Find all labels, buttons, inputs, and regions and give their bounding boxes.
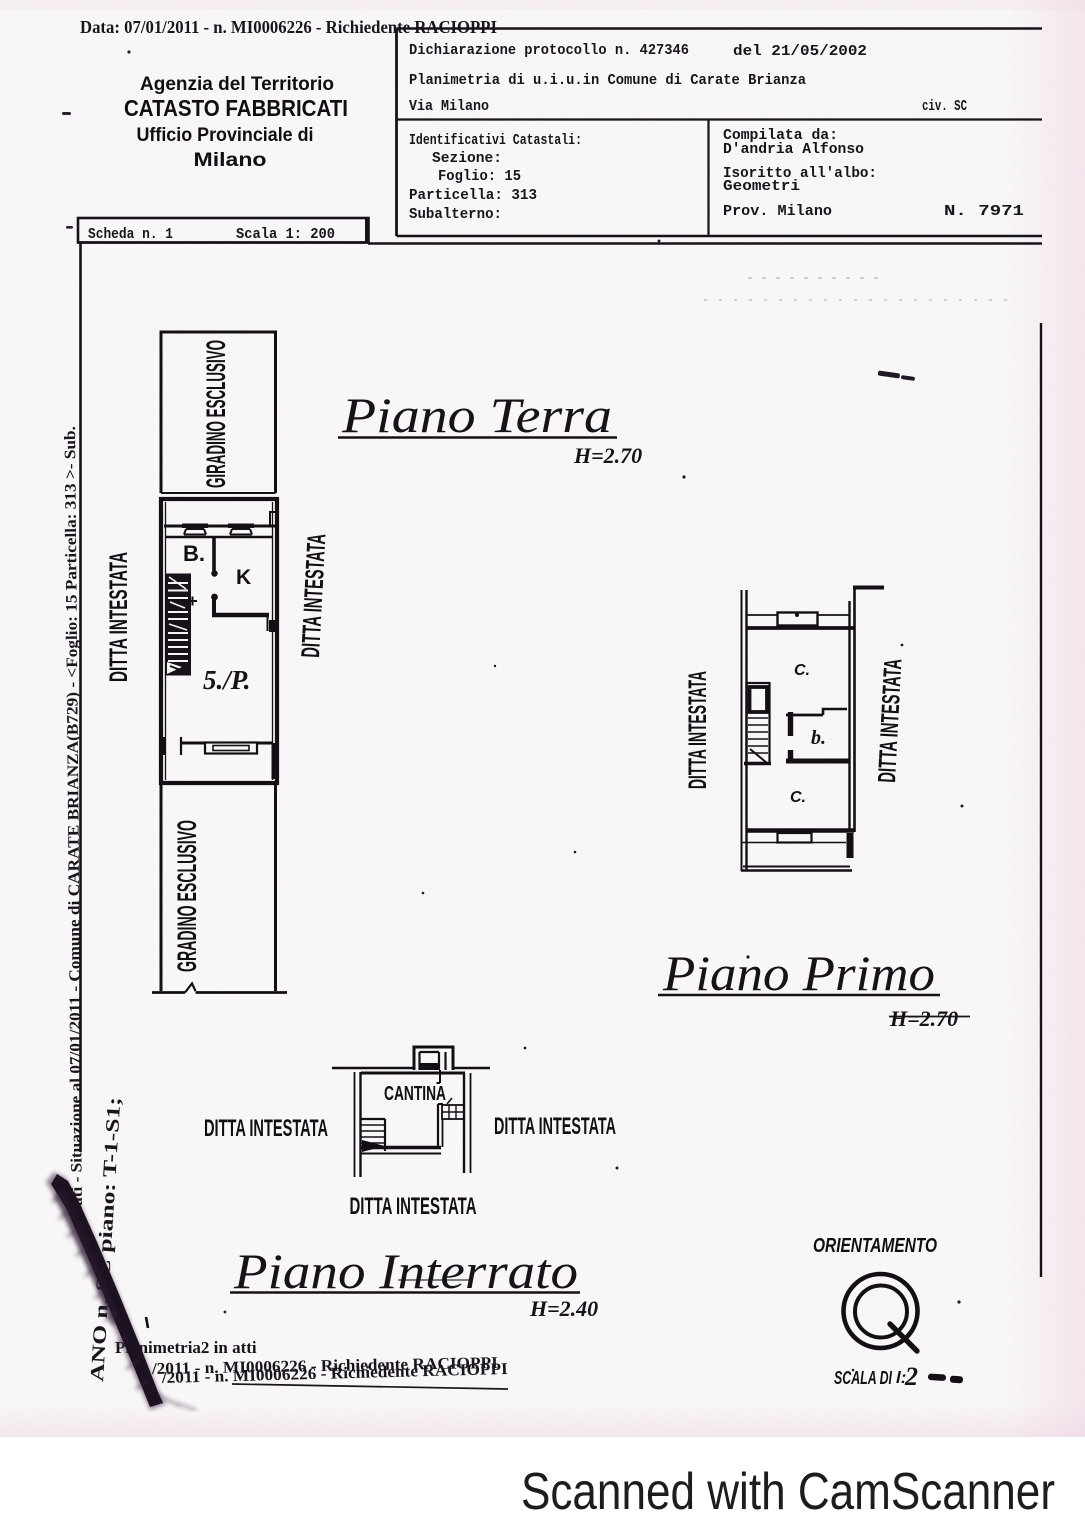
- svg-text:DITTA INTESTATA: DITTA INTESTATA: [684, 671, 712, 789]
- svg-text:civ. SC: civ. SC: [922, 99, 967, 115]
- svg-text:DITTA INTESTATA: DITTA INTESTATA: [494, 1113, 616, 1140]
- svg-text:Data: 07/01/2011 - n. MI000622: Data: 07/01/2011 - n. MI0006226 - Richie…: [80, 17, 497, 37]
- svg-text:Geometri: Geometri: [723, 179, 800, 195]
- svg-text:B.: B.: [183, 541, 205, 566]
- svg-text:Planimetria di u.i.u.in Comune: Planimetria di u.i.u.in Comune di Carate…: [409, 73, 806, 89]
- svg-text:Scheda n. 1: Scheda n. 1: [88, 227, 173, 243]
- svg-text:ORIENTAMENTO: ORIENTAMENTO: [813, 1235, 937, 1257]
- svg-text:H=2.70: H=2.70: [573, 443, 642, 468]
- svg-text:GRADINO ESCLUSIVO: GRADINO ESCLUSIVO: [172, 820, 202, 972]
- svg-text:Agenzia del Territorio: Agenzia del Territorio: [140, 74, 334, 95]
- svg-text:CATASTO FABBRICATI: CATASTO FABBRICATI: [124, 95, 348, 121]
- svg-text:2: 2: [904, 1362, 918, 1391]
- svg-text:Prov. Milano: Prov. Milano: [723, 204, 832, 220]
- svg-text:SCALA DI: SCALA DI: [834, 1368, 893, 1388]
- svg-text:DITTA INTESTATA: DITTA INTESTATA: [105, 552, 133, 682]
- svg-text:H=2.40: H=2.40: [529, 1296, 598, 1321]
- svg-text:Particella: 313: Particella: 313: [409, 188, 537, 204]
- svg-text:Foglio: 15: Foglio: 15: [438, 169, 521, 185]
- svg-text:N. 7971: N. 7971: [944, 204, 1024, 220]
- svg-text:Piano Primo: Piano Primo: [662, 945, 935, 1001]
- svg-text:del 21/05/2002: del 21/05/2002: [733, 44, 867, 60]
- svg-text:Via Milano: Via Milano: [409, 99, 489, 115]
- svg-text:GIRADINO ESCLUSIVO: GIRADINO ESCLUSIVO: [201, 340, 231, 488]
- svg-text:Identificativi Catastali:: Identificativi Catastali:: [409, 133, 582, 149]
- svg-text:H=2.70: H=2.70: [889, 1006, 958, 1031]
- svg-text:C.: C.: [790, 789, 806, 806]
- svg-text:Subalterno:: Subalterno:: [409, 207, 502, 223]
- svg-text:Dichiarazione protocollo n. 42: Dichiarazione protocollo n. 427346: [409, 43, 689, 59]
- svg-text:CANTINA: CANTINA: [384, 1083, 446, 1105]
- svg-text:Sezione:: Sezione:: [432, 151, 502, 167]
- svg-text:DITTA INTESTATA: DITTA INTESTATA: [204, 1115, 328, 1142]
- svg-text:Ufficio Provinciale di: Ufficio Provinciale di: [137, 125, 314, 146]
- svg-text:5./P.: 5./P.: [203, 665, 251, 695]
- svg-text:Scanned with CamScanner: Scanned with CamScanner: [521, 1463, 1055, 1521]
- svg-text:D'andria Alfonso: D'andria Alfonso: [723, 142, 864, 158]
- svg-text:DITTA INTESTATA: DITTA INTESTATA: [350, 1193, 477, 1220]
- svg-text:C.: C.: [794, 662, 810, 679]
- svg-text:Scala 1: 200: Scala 1: 200: [236, 227, 335, 243]
- svg-text:Milano: Milano: [194, 150, 267, 171]
- svg-text:K: K: [236, 566, 251, 589]
- svg-text:Piano Terra: Piano Terra: [341, 387, 612, 443]
- svg-text:Piano Interrato: Piano Interrato: [233, 1243, 578, 1299]
- svg-text:b.: b.: [811, 727, 826, 749]
